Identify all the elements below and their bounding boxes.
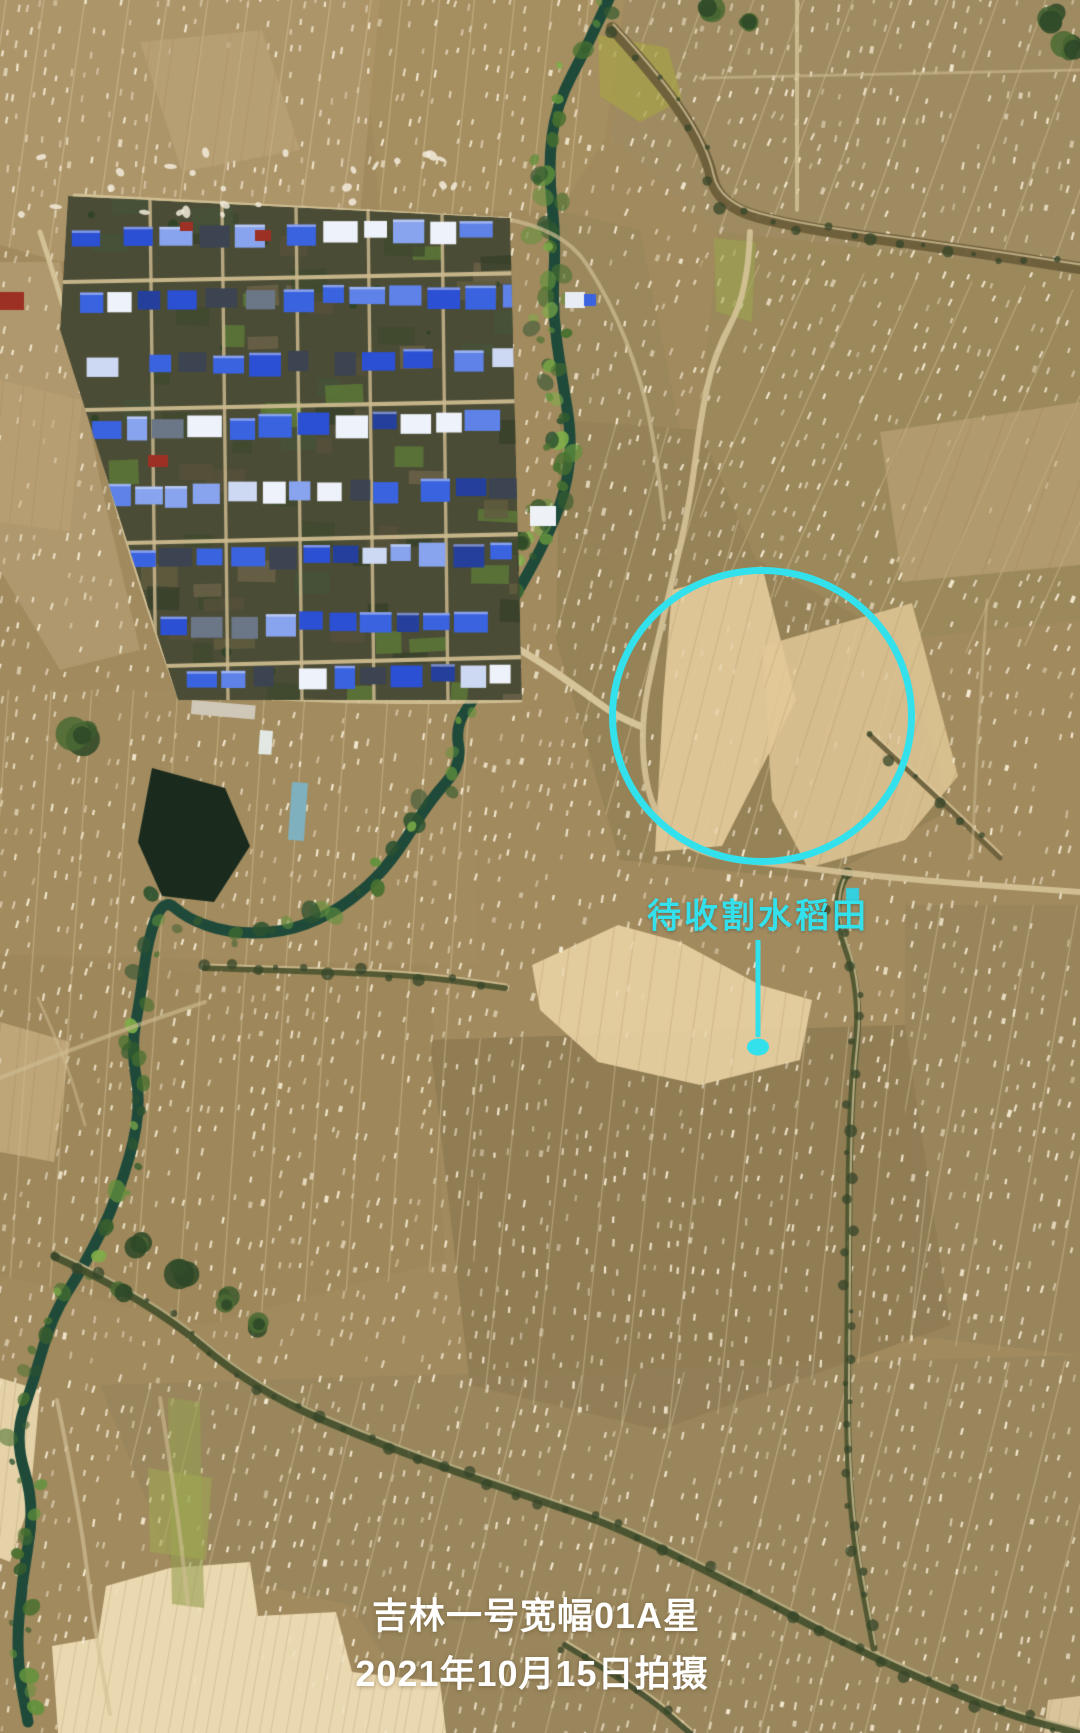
- satellite-imagery: [0, 0, 1080, 1733]
- satellite-photo: 待收割水稻田 吉林一号宽幅01A星 2021年10月15日拍摄: [0, 0, 1080, 1733]
